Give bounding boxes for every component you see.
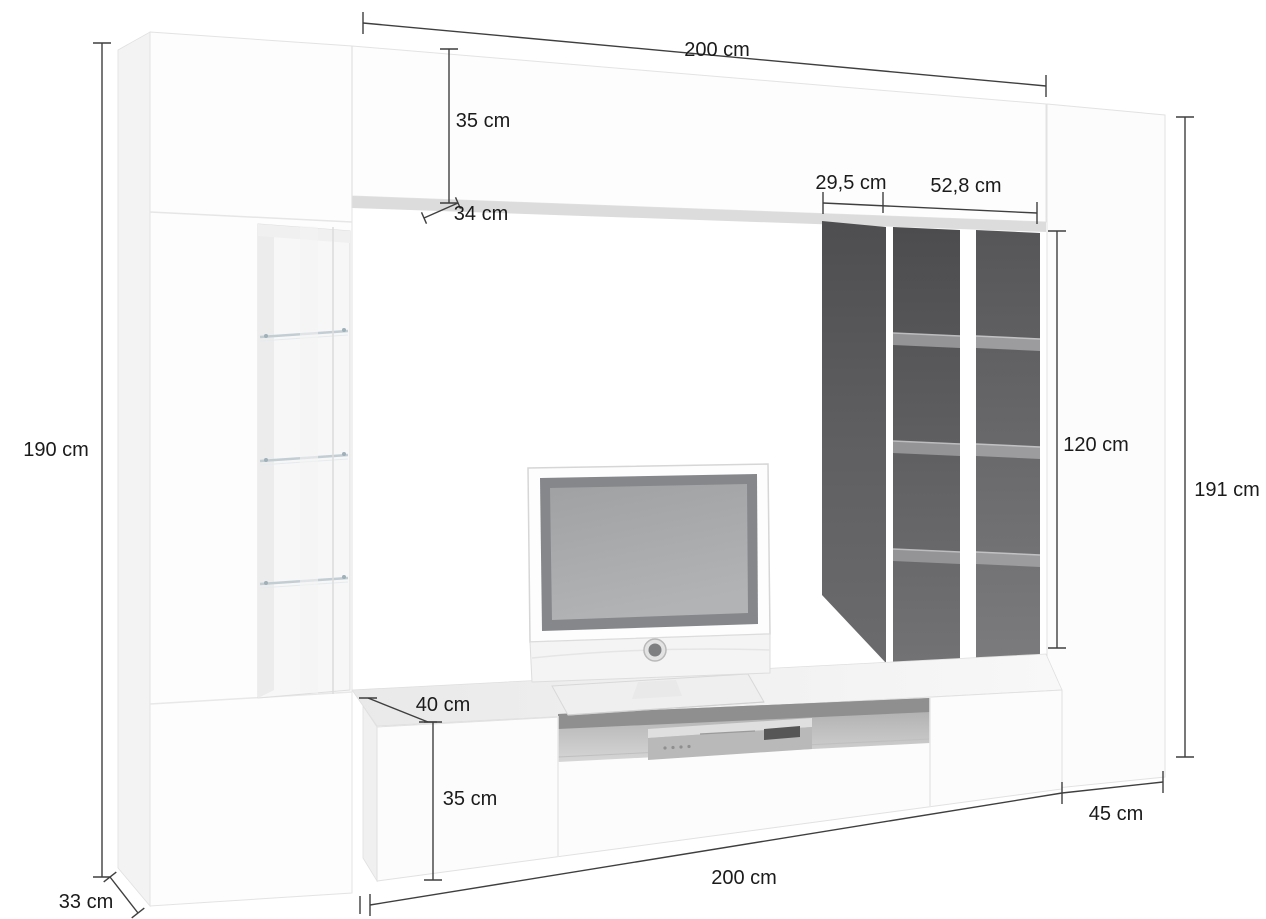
tv-stand-neck xyxy=(632,680,682,699)
dim-label-top-width: 200 cm xyxy=(684,40,750,60)
dim-line-left-height xyxy=(93,43,111,877)
dim-label-left-depth: 33 cm xyxy=(59,892,113,912)
dim-label-niche-left-width: 29,5 cm xyxy=(815,173,886,193)
product-dimension-image: 200 cm 35 cm 34 cm 29,5 cm 52,8 cm 190 c… xyxy=(0,0,1266,919)
dim-label-lowboard-depth: 40 cm xyxy=(416,695,470,715)
dim-label-left-height: 190 cm xyxy=(23,440,89,460)
dim-label-right-depth: 45 cm xyxy=(1089,804,1143,824)
left-cabinet-side-face xyxy=(118,32,150,906)
dim-label-top-cabinet-height: 35 cm xyxy=(456,111,510,131)
tv-power-button xyxy=(649,644,662,657)
dim-label-right-height: 191 cm xyxy=(1194,480,1260,500)
glass-door-reflection xyxy=(300,226,318,694)
dim-label-niche-right-width: 52,8 cm xyxy=(930,176,1001,196)
cube-shelf-unit xyxy=(822,221,1040,663)
dim-label-top-cabinet-depth: 34 cm xyxy=(454,204,508,224)
lowboard-side-face xyxy=(363,706,377,881)
dim-line-right-height xyxy=(1176,117,1194,757)
dim-label-lowboard-width: 200 cm xyxy=(711,868,777,888)
shelf-back-panel xyxy=(822,221,886,663)
dim-label-shelf-height: 120 cm xyxy=(1063,435,1129,455)
furniture-drawing xyxy=(0,0,1266,919)
tv-screen xyxy=(550,484,748,620)
dim-label-lowboard-height: 35 cm xyxy=(443,789,497,809)
television xyxy=(528,464,770,715)
left-display-cabinet xyxy=(118,32,352,906)
